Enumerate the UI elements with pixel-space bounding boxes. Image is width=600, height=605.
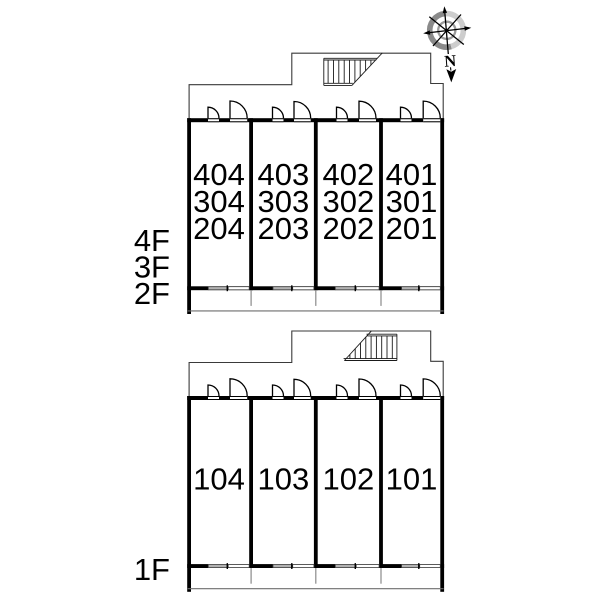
svg-text:103: 103 (258, 462, 310, 497)
svg-text:2F: 2F (134, 276, 170, 311)
svg-text:204: 204 (193, 211, 245, 246)
svg-text:102: 102 (323, 462, 375, 497)
svg-text:1F: 1F (134, 552, 170, 587)
svg-text:104: 104 (193, 462, 245, 497)
svg-text:101: 101 (386, 462, 438, 497)
svg-text:202: 202 (323, 211, 375, 246)
svg-text:201: 201 (386, 211, 438, 246)
svg-text:203: 203 (258, 211, 310, 246)
